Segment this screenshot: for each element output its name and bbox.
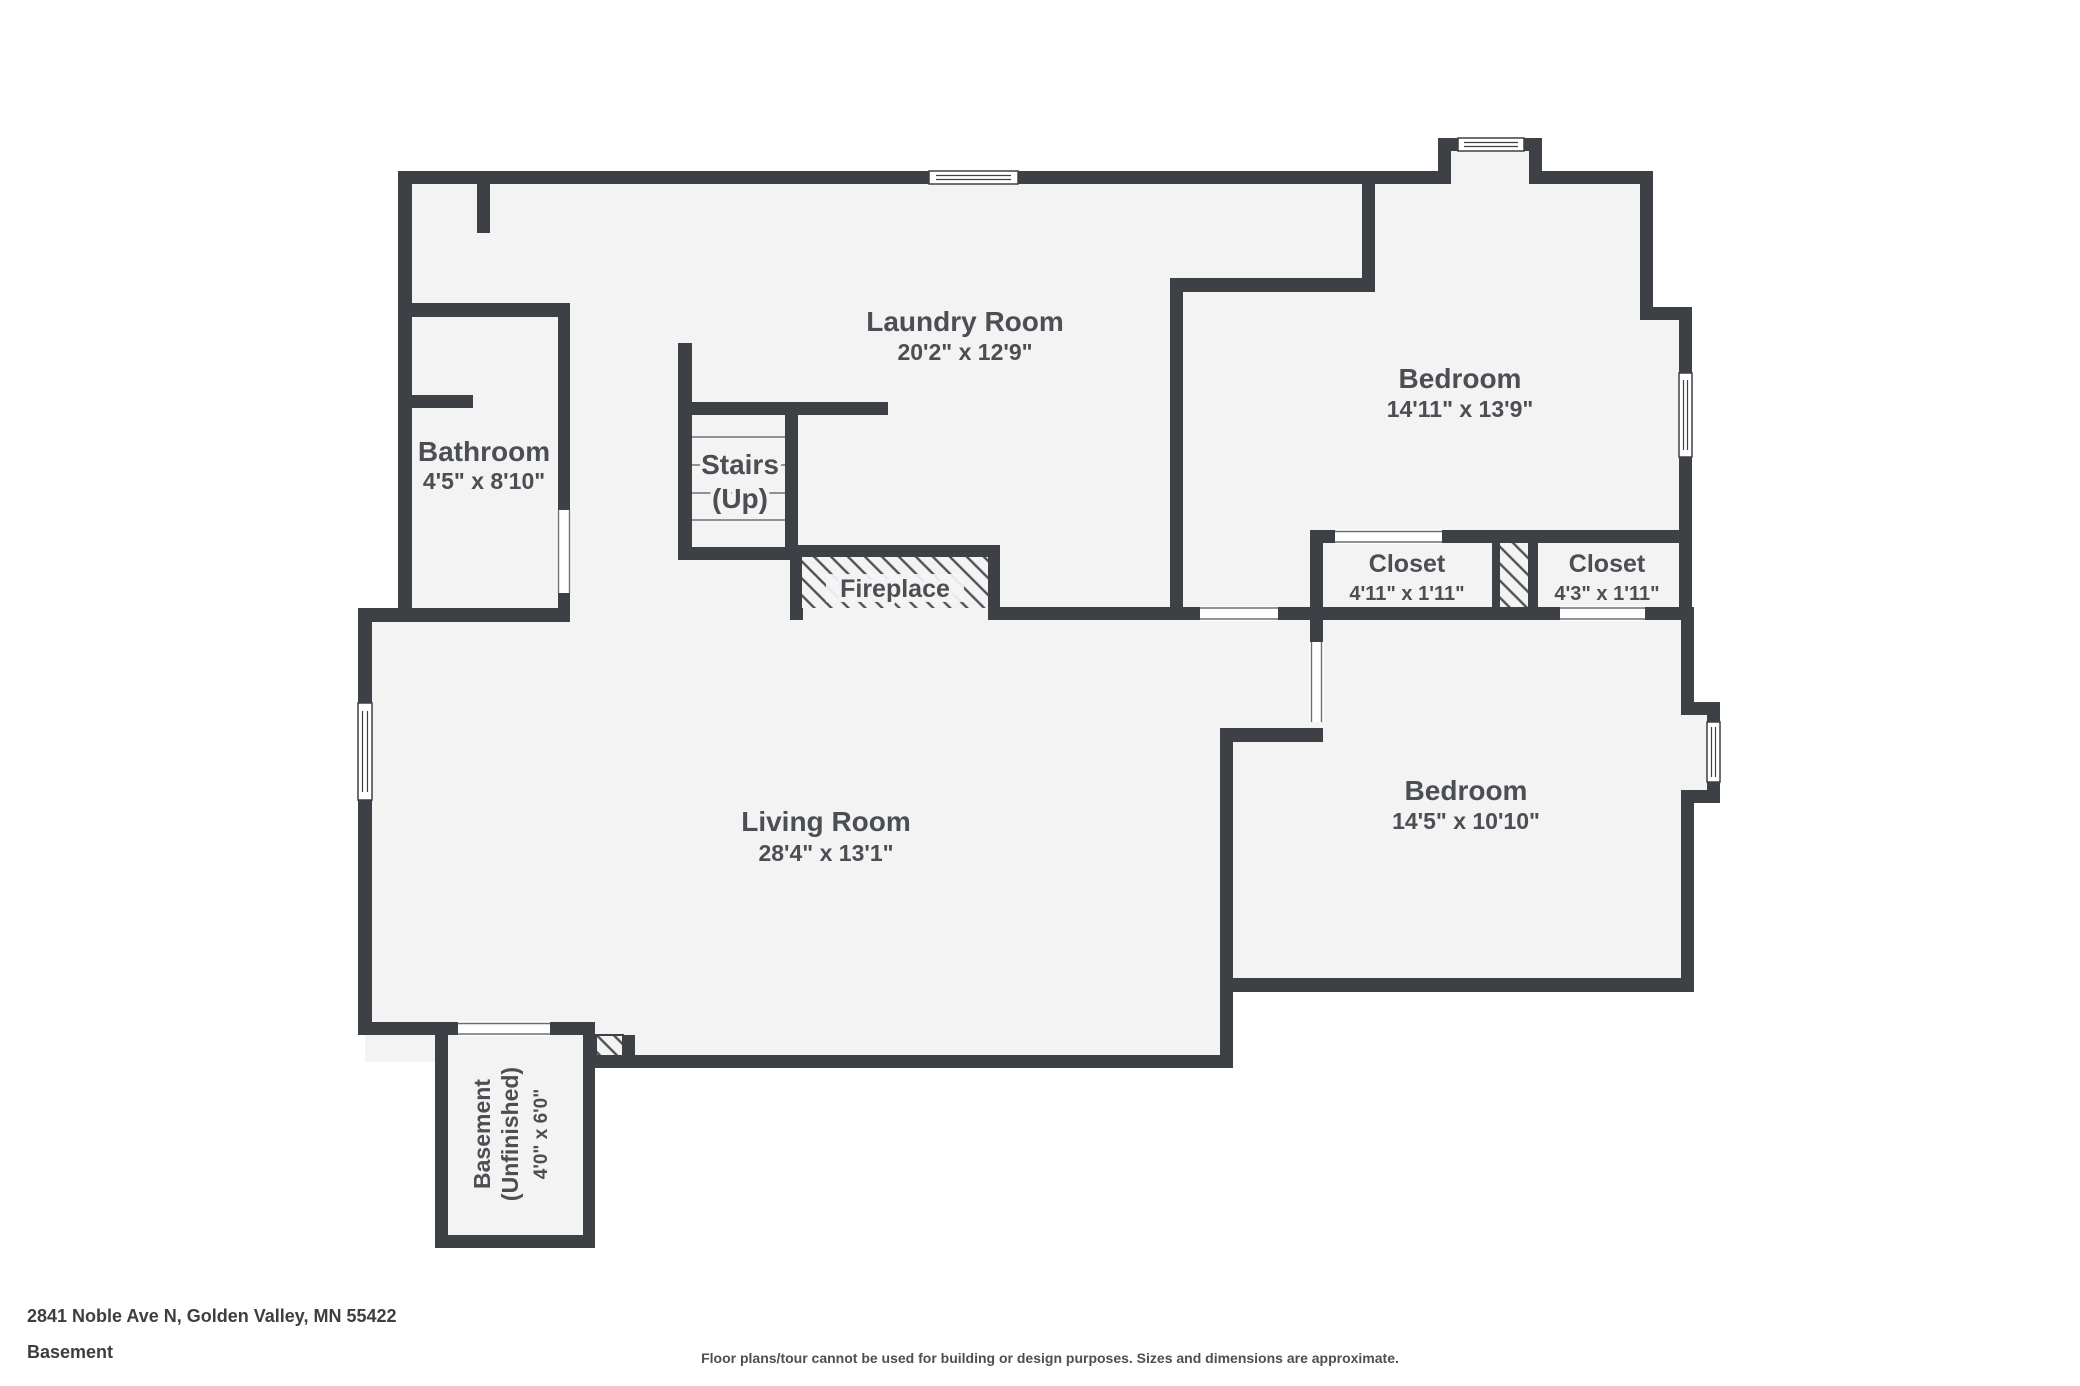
footer-level: Basement (27, 1342, 113, 1362)
wall-closet1-left (1310, 530, 1323, 620)
door-basement (458, 1021, 550, 1036)
bathroom-dims: 4'5" x 8'10" (423, 468, 545, 494)
footer-address: 2841 Noble Ave N, Golden Valley, MN 5542… (27, 1306, 397, 1326)
wall-bedroom2-bottom (1220, 978, 1694, 992)
wall-top-right (1536, 171, 1653, 184)
chimney-hatch (596, 1035, 623, 1056)
window-living-left (358, 703, 372, 800)
footer: 2841 Noble Ave N, Golden Valley, MN 5542… (27, 1306, 1399, 1366)
wall-stairs-bottom (678, 547, 798, 560)
laundry-room-label: Laundry Room (866, 306, 1064, 337)
window-bedroom2-bay (1707, 722, 1720, 782)
closet1-dims: 4'11" x 1'11" (1349, 583, 1464, 605)
wall-bedroom2-right-upper (1681, 614, 1694, 715)
basement-dims: 4'0" x 6'0" (531, 1089, 552, 1179)
wall-divider-upper (1362, 184, 1375, 292)
door-closet1 (1335, 529, 1442, 544)
door-bathroom (557, 510, 571, 593)
wall-bathroom-bottom (358, 608, 570, 622)
wall-living-bottom-right (595, 1055, 1233, 1068)
footer-disclaimer: Floor plans/tour cannot be used for buil… (701, 1350, 1399, 1366)
wall-basement-right (583, 1028, 595, 1248)
basement-label2: (Unfinished) (497, 1067, 523, 1201)
laundry-room-dims: 20'2" x 12'9" (897, 339, 1032, 365)
wall-top-main (398, 171, 1444, 184)
wall-stairs-right (785, 415, 798, 560)
door-hall (1200, 606, 1278, 621)
wall-right-upper (1640, 184, 1653, 313)
basement-label: Basement (469, 1079, 495, 1189)
wall-right-mid (1679, 313, 1692, 620)
wall-fireplace-top (790, 545, 1000, 557)
fireplace-label: Fireplace (840, 575, 950, 603)
wall-corner-h (1222, 728, 1323, 742)
wall-closet-column-right (1528, 543, 1538, 607)
wall-corner-v (1220, 728, 1233, 992)
closet-column-hatch (1500, 543, 1528, 607)
stairs-label: Stairs (701, 449, 779, 480)
closet2-label: Closet (1569, 550, 1646, 578)
wall-bathroom-top (398, 303, 570, 317)
wall-divider-jog (1170, 278, 1375, 292)
living-room-label: Living Room (741, 806, 911, 837)
bedroom1-label: Bedroom (1399, 363, 1522, 394)
wall-bedroom2-door-stub (1310, 620, 1323, 642)
door-bedroom2 (1309, 642, 1324, 722)
closet2-dims: 4'3" x 1'11" (1554, 583, 1659, 605)
wall-bedroom2-right-lower (1681, 803, 1694, 992)
bedroom2-label: Bedroom (1405, 775, 1528, 806)
window-bedroom1-bay (1458, 138, 1524, 151)
wall-living-left (358, 608, 372, 1035)
living-room-dims: 28'4" x 13'1" (758, 840, 893, 866)
wall-fireplace-left (790, 545, 803, 620)
wall-basement-bottom (435, 1235, 595, 1248)
wall-fireplace-right (988, 545, 1000, 620)
wall-bathroom-stub (398, 395, 473, 408)
window-laundry-top (929, 171, 1018, 184)
wall-topleft-stub (477, 184, 490, 233)
floor-plan-page: Laundry Room 20'2" x 12'9" Bedroom 14'11… (0, 0, 2080, 1386)
wall-bay2-bottom (1681, 790, 1720, 803)
wall-closet-column-left (1492, 543, 1500, 607)
stairs-up-label: (Up) (712, 483, 768, 514)
bathroom-label: Bathroom (418, 436, 550, 467)
wall-basement-left (435, 1022, 448, 1248)
window-bedroom1-right (1679, 373, 1692, 457)
wall-divider-lower (1170, 278, 1183, 620)
closet1-label: Closet (1369, 550, 1446, 578)
wall-stairs-top (678, 402, 888, 415)
bedroom2-dims: 14'5" x 10'10" (1392, 808, 1540, 834)
bedroom1-dims: 14'11" x 13'9" (1387, 396, 1534, 422)
floor-plan-canvas: Laundry Room 20'2" x 12'9" Bedroom 14'11… (0, 0, 2080, 1386)
door-closet2 (1560, 606, 1645, 621)
wall-stairs-left (678, 343, 692, 560)
